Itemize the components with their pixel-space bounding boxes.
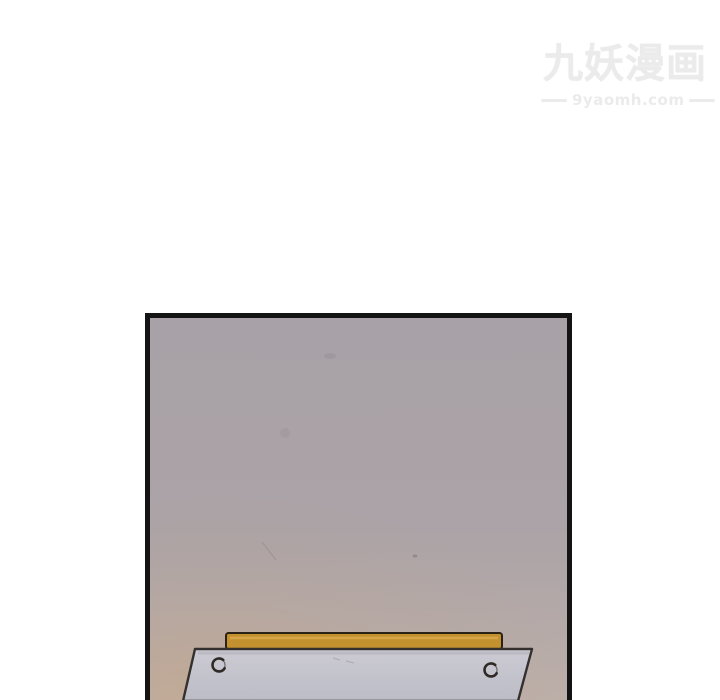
watermark: 九妖漫画 9yaomh.com [541,44,709,109]
watermark-title: 九妖漫画 [541,44,709,84]
paper-speck [413,555,418,558]
comic-panel [145,313,572,700]
desk-front-board [183,649,532,700]
watermark-url: 9yaomh.com [572,91,684,109]
tabletop-edge [226,633,502,649]
watermark-divider-left [541,99,567,102]
paper-smudge [324,353,336,359]
paper-smudge [280,428,290,438]
desk-illustration [150,318,567,700]
watermark-url-row: 9yaomh.com [541,91,709,109]
comic-page: 九妖漫画 9yaomh.com [0,0,720,700]
watermark-divider-right [689,99,715,102]
